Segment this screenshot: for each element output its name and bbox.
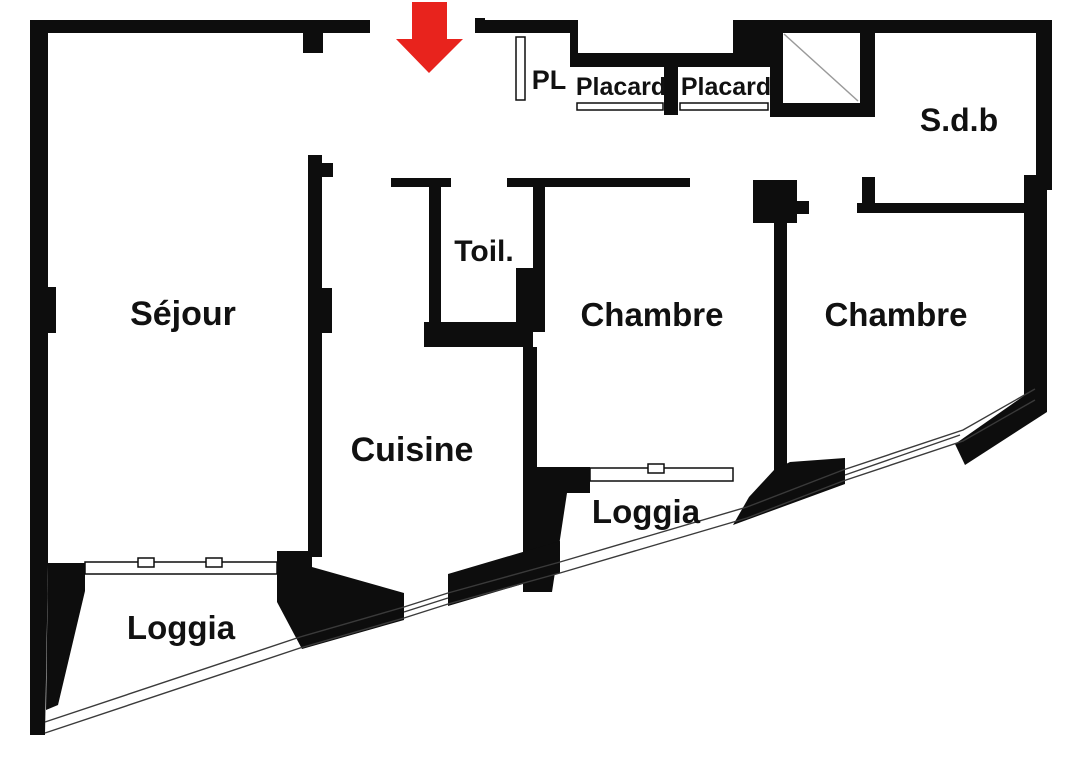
room-label-toilettes: Toil. — [454, 235, 513, 268]
room-label-loggia-2: Loggia — [592, 493, 701, 530]
wall-segment — [1036, 20, 1052, 190]
wall-segment — [308, 155, 322, 557]
window-tick — [648, 464, 664, 473]
wall-segment — [357, 25, 370, 33]
wall-segment — [46, 563, 85, 710]
wall-segment — [797, 201, 809, 214]
room-label-sdb: S.d.b — [920, 102, 998, 138]
entrance-arrow-icon — [396, 2, 463, 73]
wall-segment — [857, 203, 1027, 213]
room-labels: Séjour Cuisine Toil. Chambre Chambre S.d… — [127, 65, 998, 646]
wall-segment — [570, 53, 740, 67]
wall-segment — [955, 393, 1047, 465]
room-label-sejour: Séjour — [130, 295, 236, 333]
room-label-cuisine: Cuisine — [351, 431, 474, 469]
room-label-placard-2: Placard — [681, 73, 771, 101]
wall-segment — [783, 103, 875, 117]
room-label-loggia-1: Loggia — [127, 609, 236, 646]
placard-door — [680, 103, 768, 110]
wall-segment — [523, 347, 537, 469]
wall-segment — [448, 541, 560, 606]
wall-segment — [1024, 175, 1047, 395]
wall-segment — [303, 33, 323, 53]
placard-door — [577, 103, 663, 110]
room-label-chambre-2: Chambre — [824, 296, 967, 333]
arrow-shaft — [412, 2, 447, 40]
window-tick — [138, 558, 154, 567]
window-tick — [206, 558, 222, 567]
wall-segment — [30, 20, 370, 33]
wall-segment — [391, 178, 451, 187]
wall-segment — [277, 551, 404, 649]
floor-plan-canvas: Séjour Cuisine Toil. Chambre Chambre S.d… — [0, 0, 1080, 770]
wall-segment — [308, 288, 332, 333]
wall-segment — [44, 287, 56, 333]
pl-door — [516, 37, 525, 100]
wall-segment — [523, 467, 590, 493]
arrow-head — [396, 39, 463, 73]
wall-segment — [429, 180, 441, 325]
sejour-window — [85, 562, 277, 574]
wall-segment — [322, 163, 333, 177]
wall-segment — [30, 565, 48, 735]
room-label-placard-1: Placard — [576, 73, 666, 101]
shaft-diagonal-line — [784, 34, 858, 101]
wall-segment — [424, 322, 533, 347]
wall-segment — [770, 20, 783, 117]
room-label-pl: PL — [532, 65, 567, 95]
wall-segment — [860, 33, 875, 103]
wall-segment — [753, 180, 797, 223]
window-mid-line — [845, 435, 960, 475]
room-label-chambre-1: Chambre — [580, 296, 723, 333]
wall-segment — [774, 223, 787, 473]
wall-segment — [478, 20, 578, 33]
floor-plan: Séjour Cuisine Toil. Chambre Chambre S.d… — [0, 0, 1080, 770]
